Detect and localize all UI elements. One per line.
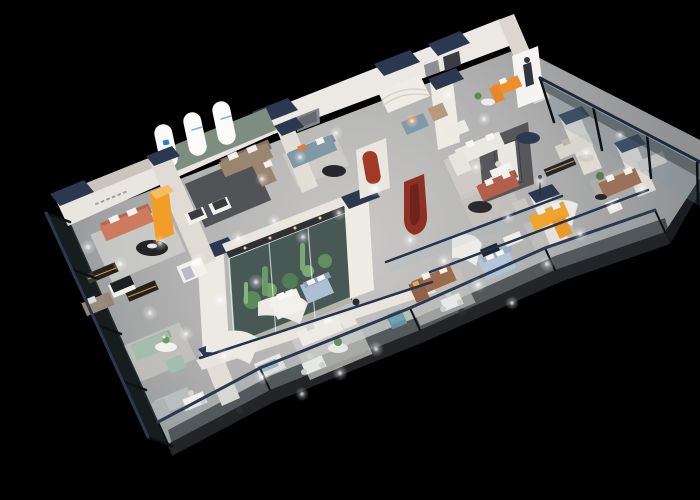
spotlight-glow bbox=[255, 172, 269, 186]
spotlight-glow bbox=[331, 205, 347, 221]
spotlight-glow bbox=[505, 296, 519, 310]
spotlight-glow bbox=[267, 214, 281, 228]
spotlight-glow bbox=[367, 181, 383, 197]
spotlight-glow bbox=[152, 235, 168, 251]
showroom-render: 3d-isometric-furniture-showroom-floorpla… bbox=[0, 0, 700, 500]
spotlight-glow bbox=[216, 348, 232, 364]
spotlight-glow bbox=[605, 199, 619, 213]
spotlight-glow bbox=[293, 150, 307, 164]
spotlight-glow bbox=[212, 292, 228, 308]
track-light bbox=[269, 237, 272, 240]
office-chair bbox=[353, 299, 360, 306]
track-light bbox=[244, 247, 247, 250]
spotlight-glow bbox=[501, 210, 515, 224]
track-light bbox=[319, 217, 322, 220]
spotlight-glow bbox=[614, 129, 626, 141]
spotlight-glow bbox=[572, 226, 588, 242]
office-chair bbox=[237, 407, 244, 414]
spotlight-glow bbox=[295, 229, 311, 245]
spotlight-glow bbox=[178, 326, 194, 342]
glass-mullion bbox=[697, 160, 698, 204]
spotlight-glow bbox=[142, 305, 158, 321]
spotlight-glow bbox=[190, 253, 206, 269]
spotlight-glow bbox=[405, 114, 419, 128]
track-light bbox=[294, 227, 297, 230]
spotlight-glow bbox=[402, 232, 418, 248]
black-oval-table bbox=[468, 201, 492, 213]
spotlight-glow bbox=[295, 387, 309, 401]
spotlight-glow bbox=[248, 274, 264, 290]
spotlight-glow bbox=[80, 239, 96, 255]
dining-chair bbox=[188, 390, 194, 396]
spotlight-glow bbox=[533, 174, 547, 188]
dining-chair bbox=[495, 161, 501, 167]
potted-plant bbox=[596, 172, 604, 180]
spotlight-glow bbox=[579, 146, 593, 160]
spotlight-glow bbox=[332, 365, 348, 381]
spotlight-glow bbox=[329, 126, 343, 140]
potted-plant bbox=[475, 93, 482, 100]
spotlight-glow bbox=[469, 160, 483, 174]
spotlight-glow bbox=[436, 253, 452, 269]
spotlight-glow bbox=[112, 256, 128, 272]
black-side-table bbox=[595, 194, 607, 200]
floorplan-svg bbox=[0, 0, 700, 500]
navy-round-table bbox=[516, 132, 540, 144]
spotlight-glow bbox=[368, 341, 384, 357]
spotlight-glow bbox=[635, 182, 649, 196]
spotlight-glow bbox=[539, 256, 555, 272]
spotlight-glow bbox=[254, 369, 270, 385]
spotlight-glow bbox=[441, 88, 455, 102]
spotlight-glow bbox=[230, 230, 246, 246]
black-round-table bbox=[322, 165, 346, 177]
flower-bloom bbox=[163, 336, 166, 339]
spotlight-glow bbox=[470, 277, 486, 293]
coffee-table-small bbox=[481, 99, 495, 106]
spotlight-glow bbox=[477, 112, 491, 126]
